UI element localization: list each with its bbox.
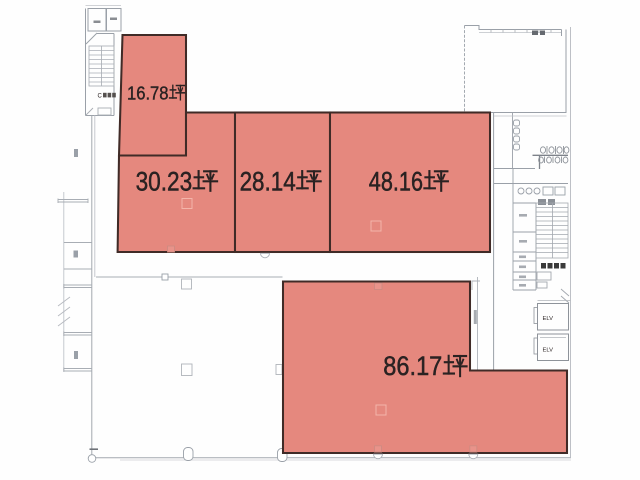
- svg-text:C: C: [98, 94, 103, 100]
- svg-text:30.23: 30.23: [136, 167, 193, 197]
- svg-text:86.17: 86.17: [383, 351, 442, 381]
- svg-text:ELV: ELV: [543, 316, 554, 322]
- svg-text:28.14: 28.14: [240, 167, 296, 197]
- svg-text:16.78: 16.78: [127, 83, 169, 103]
- svg-text:48.16: 48.16: [369, 167, 423, 197]
- svg-text:ELV: ELV: [543, 348, 554, 354]
